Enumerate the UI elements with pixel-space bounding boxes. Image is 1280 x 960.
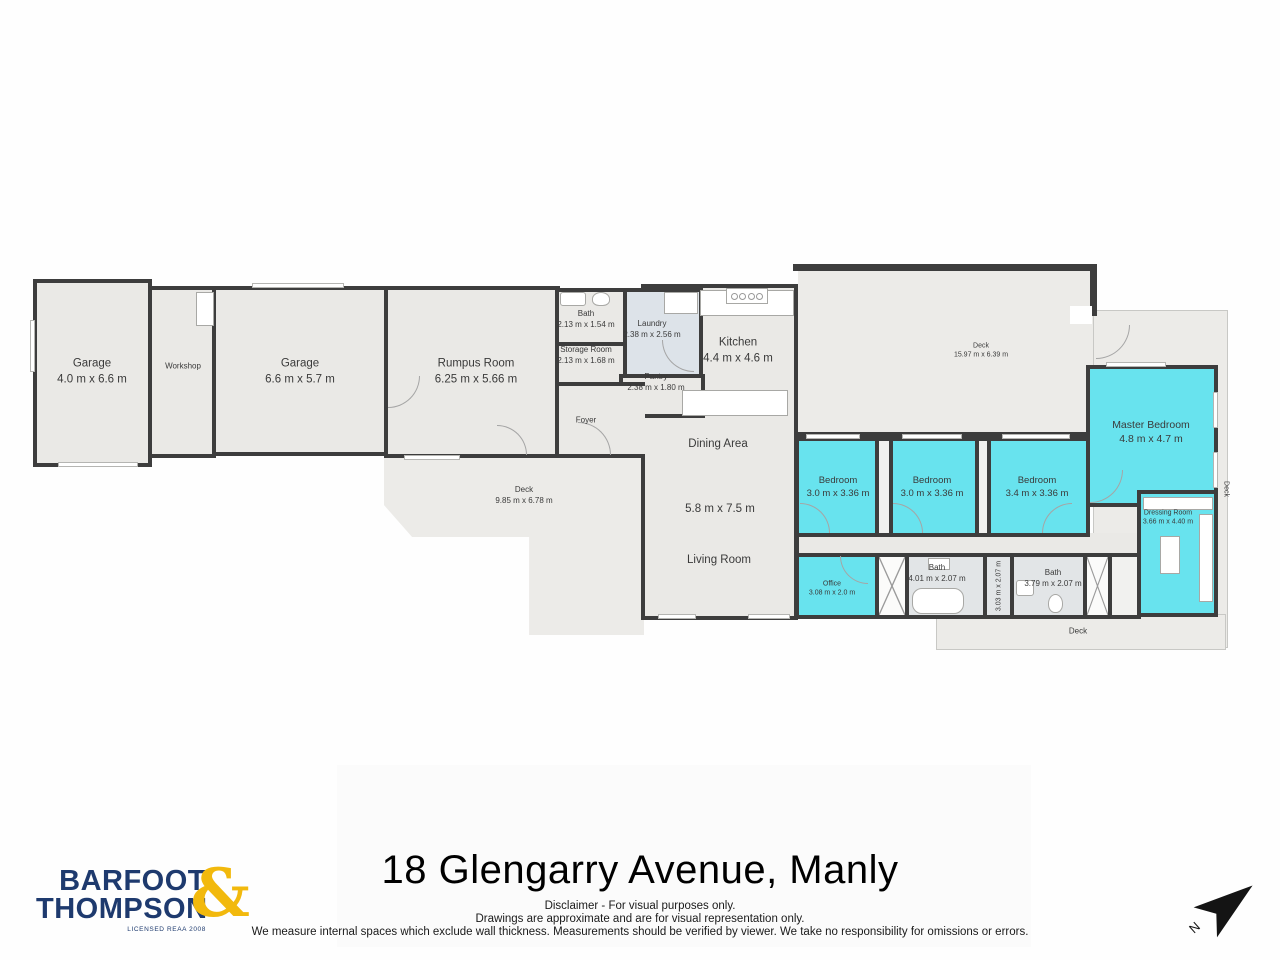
logo-thompson: THOMPSON (36, 896, 206, 924)
burner-icon (731, 293, 738, 300)
room-name: Garage (265, 356, 335, 372)
label-dining: Dining Area (688, 437, 747, 453)
room-name: Kitchen (703, 335, 773, 351)
burner-icon (739, 293, 746, 300)
dressing-island (1160, 536, 1180, 574)
room-name: Garage (57, 356, 127, 372)
label-bedroom-2: Bedroom 3.0 m x 3.36 m (901, 475, 964, 501)
window (1106, 362, 1166, 367)
burner-icon (756, 293, 763, 300)
window (748, 614, 790, 619)
window (30, 320, 35, 372)
laundry-machines (664, 292, 698, 314)
label-laundry: Laundry 2.38 m x 2.56 m (623, 319, 680, 341)
room-name: Master Bedroom (1112, 418, 1190, 432)
room-dims: 2.13 m x 1.54 m (557, 320, 614, 331)
label-deck-top: Deck 15.97 m x 6.39 m (954, 342, 1008, 361)
room-dims: 3.4 m x 3.36 m (1006, 488, 1069, 501)
window (902, 434, 962, 439)
stove-icon (726, 288, 768, 304)
room-dims: 6.25 m x 5.66 m (435, 372, 517, 388)
room-name: Dressing Room (1143, 509, 1193, 518)
room-dims: 9.85 m x 6.78 m (495, 496, 552, 507)
room-dims: 5.8 m x 7.5 m (685, 502, 755, 518)
room-name: Bath (1024, 568, 1081, 579)
label-kitchen: Kitchen 4.4 m x 4.6 m (703, 335, 773, 366)
bath3-toilet (1048, 594, 1063, 613)
closet-x-1 (875, 553, 909, 619)
logo-tagline: LICENSED REAA 2008 (36, 926, 206, 933)
label-garage-1: Garage 4.0 m x 6.6 m (57, 356, 127, 387)
label-deck-right: Deck (1221, 481, 1230, 497)
room-dims: 3.0 m x 3.36 m (807, 488, 870, 501)
bathtub (912, 588, 964, 614)
label-living: Living Room (687, 553, 751, 569)
window (58, 462, 138, 467)
bath1-sink (560, 292, 586, 306)
room-name: Rumpus Room (435, 356, 517, 372)
room-name: Office (809, 580, 855, 589)
label-office: Office 3.08 m x 2.0 m (809, 580, 855, 599)
label-hallway-dims: 3.03 m x 2.07 m (994, 561, 1003, 611)
dressing-rack-right (1199, 514, 1213, 602)
label-living-dims: 5.8 m x 7.5 m (685, 502, 755, 518)
label-master: Master Bedroom 4.8 m x 4.7 m (1112, 418, 1190, 446)
room-dims: 3.66 m x 4.40 m (1143, 518, 1193, 527)
room-dims: 3.08 m x 2.0 m (809, 589, 855, 598)
label-workshop: Workshop (165, 362, 201, 373)
label-foyer: Foyer (576, 416, 596, 427)
disclaimer-line-1: Disclaimer - For visual purposes only. (545, 900, 736, 912)
window (1002, 434, 1070, 439)
room-name: Foyer (576, 416, 596, 427)
room-name: Bedroom (1006, 475, 1069, 488)
room-name: Bath (908, 563, 965, 574)
label-garage-2: Garage 6.6 m x 5.7 m (265, 356, 335, 387)
label-pantry: Pantry 2.38 m x 1.80 m (627, 372, 684, 394)
page-title: 18 Glengarry Avenue, Manly (381, 848, 898, 893)
room-name: Bedroom (901, 475, 964, 488)
deck-top-wall (793, 264, 1097, 271)
room-name: Pantry (627, 372, 684, 383)
room-name: Deck (1221, 481, 1230, 497)
label-bedroom-3: Bedroom 3.4 m x 3.36 m (1006, 475, 1069, 501)
label-rumpus: Rumpus Room 6.25 m x 5.66 m (435, 356, 517, 387)
room-name: Bedroom (807, 475, 870, 488)
window (1213, 392, 1218, 428)
window (658, 614, 696, 619)
room-name: Deck (495, 485, 552, 496)
room-dims: 4.8 m x 4.7 m (1112, 432, 1190, 446)
window (1213, 452, 1218, 488)
label-bedroom-1: Bedroom 3.0 m x 3.36 m (807, 475, 870, 501)
compass-n-label: N (1186, 919, 1203, 936)
room-dims: 4.01 m x 2.07 m (908, 574, 965, 585)
room-dims: 6.6 m x 5.7 m (265, 372, 335, 388)
disclaimer-line-2: Drawings are approximate and are for vis… (476, 913, 805, 925)
label-bath-1: Bath 2.13 m x 1.54 m (557, 309, 614, 331)
label-storage: Storage Room 2.13 m x 1.68 m (557, 345, 614, 367)
closet-x-icon (1087, 557, 1108, 615)
kitchen-island (682, 390, 788, 416)
room-name: Workshop (165, 362, 201, 373)
room-dims: 4.0 m x 6.6 m (57, 372, 127, 388)
label-bath-3: Bath 3.79 m x 2.07 m (1024, 568, 1081, 590)
window (1070, 306, 1092, 324)
bath1-toilet (592, 292, 610, 306)
window (806, 434, 860, 439)
room-name: Deck (1069, 627, 1087, 638)
room-name: Living Room (687, 553, 751, 569)
barfoot-thompson-logo: BARFOOT THOMPSON & LICENSED REAA 2008 (36, 868, 206, 933)
room-dims: 3.79 m x 2.07 m (1024, 579, 1081, 590)
label-bath-2: Bath 4.01 m x 2.07 m (908, 563, 965, 585)
disclaimer-line-3: We measure internal spaces which exclude… (252, 926, 1029, 938)
logo-barfoot: BARFOOT (36, 868, 206, 896)
floorplan-page: Garage 4.0 m x 6.6 m Workshop Garage 6.6… (0, 0, 1280, 960)
deck-top (798, 271, 1094, 437)
room-name: Laundry (623, 319, 680, 330)
window (252, 283, 344, 288)
room-dims: 4.4 m x 4.6 m (703, 351, 773, 367)
window (404, 455, 460, 460)
north-compass-icon: N (1180, 872, 1270, 952)
room-dims: 2.38 m x 1.80 m (627, 383, 684, 394)
closet-x-icon (879, 557, 905, 615)
label-deck-bottom: Deck (1069, 627, 1087, 638)
room-name: Dining Area (688, 437, 747, 453)
room-dims: 3.0 m x 3.36 m (901, 488, 964, 501)
label-deck-left: Deck 9.85 m x 6.78 m (495, 485, 552, 507)
room-dims: 3.03 m x 2.07 m (994, 561, 1003, 611)
room-name: Bath (557, 309, 614, 320)
room-dims: 2.13 m x 1.68 m (557, 356, 614, 367)
burner-icon (748, 293, 755, 300)
room-dims: 2.38 m x 2.56 m (623, 330, 680, 341)
logo-ampersand-icon: & (190, 860, 250, 926)
room-dims: 15.97 m x 6.39 m (954, 351, 1008, 360)
room-name: Storage Room (557, 345, 614, 356)
label-dressing: Dressing Room 3.66 m x 4.40 m (1143, 509, 1193, 528)
room-name: Deck (954, 342, 1008, 351)
workshop-shelf (196, 292, 214, 326)
